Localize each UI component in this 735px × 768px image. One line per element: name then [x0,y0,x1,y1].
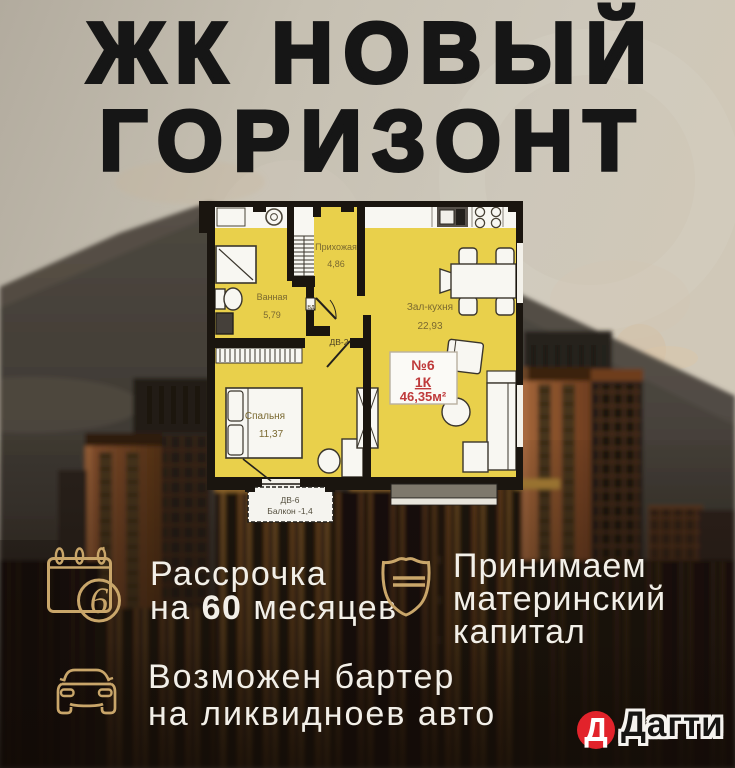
svg-text:Зал-кухня: Зал-кухня [407,302,453,313]
svg-text:ДВ-2: ДВ-2 [330,337,349,347]
svg-text:Прихожая: Прихожая [315,242,357,252]
svg-text:Спальня: Спальня [245,411,285,422]
svg-text:46,35м²: 46,35м² [400,389,447,404]
svg-text:5,79: 5,79 [263,310,281,320]
svg-text:Балкон -1,4: Балкон -1,4 [267,506,313,516]
svg-text:ВД: ВД [307,305,315,311]
svg-text:№6: №6 [411,357,435,373]
svg-text:6: 6 [90,581,109,622]
svg-text:4,86: 4,86 [327,259,345,269]
svg-text:11,37: 11,37 [259,429,284,440]
svg-text:ДВ-6: ДВ-6 [281,495,300,505]
svg-text:22,93: 22,93 [417,321,442,332]
svg-text:1К: 1К [415,374,432,390]
svg-text:Ванная: Ванная [257,292,288,302]
